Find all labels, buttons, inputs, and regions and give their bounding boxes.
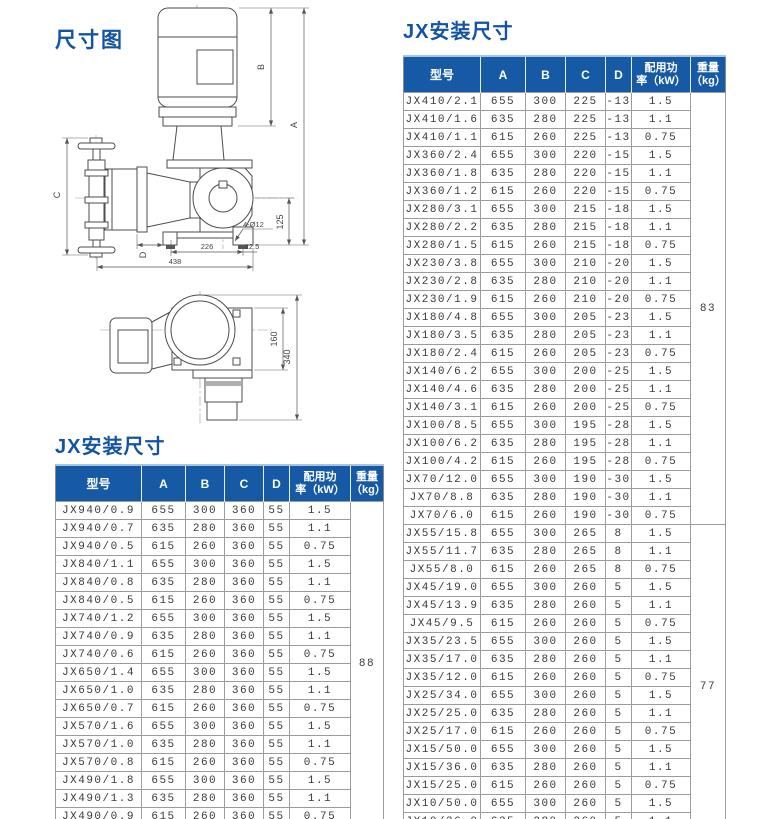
b-cell: 300 (186, 610, 225, 628)
model-cell: JX740/0.9 (56, 628, 142, 646)
power-cell: 1.5 (632, 471, 691, 489)
table-row: JX840/0.8635280360551.1 (56, 574, 384, 592)
dim-label-340: 340 (282, 349, 292, 364)
a-cell: 635 (481, 435, 526, 453)
d-cell: 5 (606, 579, 632, 597)
c-cell: 260 (566, 741, 606, 759)
power-cell: 1.5 (632, 201, 691, 219)
d-cell: 55 (264, 772, 290, 790)
b-cell: 280 (526, 111, 566, 129)
b-cell: 280 (526, 597, 566, 615)
a-cell: 655 (142, 772, 186, 790)
d-cell: 5 (606, 723, 632, 741)
dim-label-160: 160 (269, 331, 279, 346)
b-cell: 260 (526, 507, 566, 525)
a-cell: 615 (142, 538, 186, 556)
a-cell: 635 (481, 111, 526, 129)
a-cell: 615 (142, 808, 186, 819)
column-header-power: 配用功率（kW） (632, 56, 691, 93)
b-cell: 260 (526, 453, 566, 471)
c-cell: 360 (225, 574, 264, 592)
model-cell: JX230/3.8 (404, 255, 481, 273)
table-row: JX280/3.1655300215-181.5 (404, 201, 726, 219)
d-cell: -23 (606, 309, 632, 327)
c-cell: 360 (225, 754, 264, 772)
c-cell: 220 (566, 183, 606, 201)
table-row: JX490/1.8655300360551.5 (56, 772, 384, 790)
a-cell: 635 (481, 327, 526, 345)
table-row: JX55/8.061526026580.75 (404, 561, 726, 579)
c-cell: 220 (566, 147, 606, 165)
dim-label-125: 125 (275, 214, 285, 229)
table-row: JX25/17.061526026050.75 (404, 723, 726, 741)
c-cell: 260 (566, 795, 606, 813)
a-cell: 635 (481, 705, 526, 723)
model-cell: JX940/0.9 (56, 502, 142, 520)
model-cell: JX15/25.0 (404, 777, 481, 795)
model-cell: JX35/12.0 (404, 669, 481, 687)
c-cell: 265 (566, 525, 606, 543)
table-row: JX45/19.065530026051.5 (404, 579, 726, 597)
terminal-box (197, 50, 233, 84)
a-cell: 655 (481, 741, 526, 759)
model-cell: JX940/0.5 (56, 538, 142, 556)
model-cell: JX140/3.1 (404, 399, 481, 417)
model-cell: JX360/1.8 (404, 165, 481, 183)
c-cell: 360 (225, 700, 264, 718)
power-cell: 1.5 (290, 718, 351, 736)
column-header-c: C (225, 465, 264, 502)
power-cell: 1.5 (632, 795, 691, 813)
c-cell: 215 (566, 201, 606, 219)
a-cell: 655 (142, 664, 186, 682)
c-cell: 260 (566, 669, 606, 687)
table-row: JX180/3.5635280205-231.1 (404, 327, 726, 345)
a-cell: 615 (142, 700, 186, 718)
b-cell: 260 (526, 561, 566, 579)
power-cell: 0.75 (632, 129, 691, 147)
c-cell: 200 (566, 363, 606, 381)
b-cell: 280 (186, 520, 225, 538)
model-cell: JX25/34.0 (404, 687, 481, 705)
d-cell: -30 (606, 489, 632, 507)
table-row: JX180/4.8655300205-231.5 (404, 309, 726, 327)
a-cell: 635 (142, 628, 186, 646)
model-cell: JX280/3.1 (404, 201, 481, 219)
table-row: JX230/3.8655300210-201.5 (404, 255, 726, 273)
power-cell: 1.5 (632, 525, 691, 543)
c-cell: 265 (566, 543, 606, 561)
c-cell: 265 (566, 561, 606, 579)
model-cell: JX100/6.2 (404, 435, 481, 453)
outlet-stub (193, 370, 252, 420)
table-row: JX650/0.7615260360550.75 (56, 700, 384, 718)
c-cell: 360 (225, 502, 264, 520)
power-cell: 1.5 (632, 93, 691, 111)
power-cell: 1.5 (632, 579, 691, 597)
model-cell: JX25/25.0 (404, 705, 481, 723)
d-cell: 55 (264, 520, 290, 538)
model-cell: JX360/2.4 (404, 147, 481, 165)
d-cell: -15 (606, 183, 632, 201)
left-table-section: JX安装尺寸 型号ABCD配用功率（kW）重量（kg）JX940/0.96553… (55, 436, 383, 819)
d-cell: -20 (606, 273, 632, 291)
b-cell: 260 (186, 754, 225, 772)
b-cell: 300 (526, 525, 566, 543)
c-cell: 360 (225, 592, 264, 610)
table-row: JX25/34.065530026051.5 (404, 687, 726, 705)
power-cell: 1.5 (632, 309, 691, 327)
d-cell: 55 (264, 682, 290, 700)
c-cell: 360 (225, 664, 264, 682)
model-cell: JX410/1.6 (404, 111, 481, 129)
d-cell: -18 (606, 237, 632, 255)
d-cell: -23 (606, 327, 632, 345)
power-cell: 0.75 (290, 700, 351, 718)
c-cell: 190 (566, 489, 606, 507)
c-cell: 360 (225, 610, 264, 628)
c-cell: 190 (566, 507, 606, 525)
d-cell: -28 (606, 417, 632, 435)
b-cell: 280 (526, 327, 566, 345)
table-row: JX360/1.8635280220-151.1 (404, 165, 726, 183)
model-cell: JX25/17.0 (404, 723, 481, 741)
b-cell: 300 (186, 772, 225, 790)
d-cell: 5 (606, 633, 632, 651)
b-cell: 280 (526, 759, 566, 777)
b-cell: 300 (526, 147, 566, 165)
power-cell: 1.5 (632, 147, 691, 165)
power-cell: 1.1 (632, 597, 691, 615)
b-cell: 300 (526, 687, 566, 705)
model-cell: JX570/1.6 (56, 718, 142, 736)
table-row: JX35/23.565530026051.5 (404, 633, 726, 651)
c-cell: 225 (566, 129, 606, 147)
c-cell: 260 (566, 723, 606, 741)
column-header-d: D (606, 56, 632, 93)
b-cell: 300 (526, 93, 566, 111)
c-cell: 200 (566, 381, 606, 399)
model-cell: JX740/0.6 (56, 646, 142, 664)
column-header-b: B (526, 56, 566, 93)
d-cell: 55 (264, 538, 290, 556)
b-cell: 300 (526, 633, 566, 651)
d-cell: 55 (264, 502, 290, 520)
lantern-bracket (173, 126, 224, 160)
b-cell: 260 (526, 183, 566, 201)
c-cell: 360 (225, 772, 264, 790)
model-cell: JX840/0.5 (56, 592, 142, 610)
a-cell: 615 (481, 615, 526, 633)
catalog-page: 尺寸图 (0, 0, 780, 819)
c-cell: 360 (225, 520, 264, 538)
column-header-a: A (481, 56, 526, 93)
a-cell: 655 (142, 556, 186, 574)
b-cell: 280 (526, 381, 566, 399)
a-cell: 655 (142, 718, 186, 736)
table-row: JX70/8.8635280190-301.1 (404, 489, 726, 507)
model-cell: JX280/2.2 (404, 219, 481, 237)
model-cell: JX55/8.0 (404, 561, 481, 579)
d-cell: -13 (606, 93, 632, 111)
model-cell: JX490/1.3 (56, 790, 142, 808)
b-cell: 300 (526, 201, 566, 219)
table-row: JX410/2.1655300225-131.583 (404, 93, 726, 111)
b-cell: 260 (186, 700, 225, 718)
model-cell: JX45/19.0 (404, 579, 481, 597)
model-cell: JX10/50.0 (404, 795, 481, 813)
power-cell: 1.1 (632, 813, 691, 819)
a-cell: 655 (481, 201, 526, 219)
c-cell: 260 (566, 651, 606, 669)
b-cell: 280 (526, 705, 566, 723)
model-cell: JX180/2.4 (404, 345, 481, 363)
b-cell: 260 (526, 291, 566, 309)
b-cell: 280 (186, 574, 225, 592)
power-cell: 0.75 (632, 723, 691, 741)
top-view: 160 340 (100, 291, 302, 425)
c-cell: 200 (566, 399, 606, 417)
d-cell: -23 (606, 345, 632, 363)
a-cell: 655 (481, 633, 526, 651)
table-row: JX35/17.063528026051.1 (404, 651, 726, 669)
table-row: JX35/12.061526026050.75 (404, 669, 726, 687)
d-cell: 8 (606, 561, 632, 579)
d-cell: 55 (264, 592, 290, 610)
power-cell: 1.5 (632, 417, 691, 435)
right-table-title: JX安装尺寸 (403, 20, 725, 44)
model-cell: JX180/3.5 (404, 327, 481, 345)
a-cell: 635 (142, 574, 186, 592)
model-cell: JX140/4.6 (404, 381, 481, 399)
model-cell: JX35/17.0 (404, 651, 481, 669)
model-cell: JX650/0.7 (56, 700, 142, 718)
b-cell: 260 (526, 723, 566, 741)
power-cell: 0.75 (632, 561, 691, 579)
c-cell: 260 (566, 633, 606, 651)
table-row: JX70/6.0615260190-300.75 (404, 507, 726, 525)
side-view: B A C 125 4-Ø12 D 226 (52, 5, 309, 271)
a-cell: 655 (481, 147, 526, 165)
c-cell: 260 (566, 777, 606, 795)
model-cell: JX180/4.8 (404, 309, 481, 327)
a-cell: 615 (481, 777, 526, 795)
model-cell: JX490/1.8 (56, 772, 142, 790)
right-install-dimensions-table: 型号ABCD配用功率（kW）重量（kg）JX410/2.1655300225-1… (403, 55, 726, 819)
b-cell: 300 (186, 664, 225, 682)
b-cell: 260 (526, 777, 566, 795)
d-cell: 8 (606, 525, 632, 543)
table-row: JX140/4.6635280200-251.1 (404, 381, 726, 399)
model-cell: JX570/1.0 (56, 736, 142, 754)
left-table-title: JX安装尺寸 (55, 436, 383, 458)
a-cell: 655 (142, 502, 186, 520)
power-cell: 1.1 (632, 327, 691, 345)
d-cell: -18 (606, 219, 632, 237)
c-cell: 210 (566, 273, 606, 291)
table-row: JX100/4.2615260195-280.75 (404, 453, 726, 471)
d-cell: 55 (264, 754, 290, 772)
pump-head-top (110, 311, 172, 373)
table-row: JX360/1.2615260220-150.75 (404, 183, 726, 201)
table-row: JX360/2.4655300220-151.5 (404, 147, 726, 165)
a-cell: 615 (481, 345, 526, 363)
model-cell: JX45/13.9 (404, 597, 481, 615)
c-cell: 360 (225, 736, 264, 754)
c-cell: 190 (566, 471, 606, 489)
model-cell: JX10/36.0 (404, 813, 481, 819)
table-row: JX15/50.065530026051.5 (404, 741, 726, 759)
table-row: JX55/15.865530026581.577 (404, 525, 726, 543)
b-cell: 280 (526, 489, 566, 507)
c-cell: 260 (566, 759, 606, 777)
power-cell: 1.1 (290, 628, 351, 646)
table-row: JX45/9.561526026050.75 (404, 615, 726, 633)
b-cell: 300 (526, 741, 566, 759)
b-cell: 280 (526, 813, 566, 819)
c-cell: 260 (566, 687, 606, 705)
a-cell: 615 (142, 592, 186, 610)
c-cell: 225 (566, 93, 606, 111)
model-cell: JX15/50.0 (404, 741, 481, 759)
c-cell: 205 (566, 345, 606, 363)
b-cell: 260 (526, 345, 566, 363)
power-cell: 0.75 (632, 237, 691, 255)
d-cell: -20 (606, 255, 632, 273)
b-cell: 300 (186, 556, 225, 574)
model-cell: JX140/6.2 (404, 363, 481, 381)
table-row: JX570/1.6655300360551.5 (56, 718, 384, 736)
power-cell: 0.75 (632, 453, 691, 471)
b-cell: 260 (526, 129, 566, 147)
power-cell: 1.1 (290, 682, 351, 700)
c-cell: 360 (225, 646, 264, 664)
table-row: JX140/6.2655300200-251.5 (404, 363, 726, 381)
b-cell: 300 (526, 309, 566, 327)
d-cell: 5 (606, 813, 632, 819)
table-row: JX180/2.4615260205-230.75 (404, 345, 726, 363)
a-cell: 635 (142, 682, 186, 700)
power-cell: 1.1 (290, 520, 351, 538)
power-cell: 1.1 (632, 543, 691, 561)
power-cell: 0.75 (632, 183, 691, 201)
d-cell: 5 (606, 759, 632, 777)
b-cell: 300 (526, 363, 566, 381)
table-row: JX280/2.2635280215-181.1 (404, 219, 726, 237)
model-cell: JX100/8.5 (404, 417, 481, 435)
a-cell: 635 (481, 219, 526, 237)
b-cell: 260 (186, 538, 225, 556)
table-row: JX10/36.063528026051.1 (404, 813, 726, 819)
table-row: JX940/0.9655300360551.588 (56, 502, 384, 520)
dim-label-b: B (256, 64, 266, 70)
power-cell: 1.5 (290, 610, 351, 628)
column-header-d: D (264, 465, 290, 502)
dim-label-c: C (52, 191, 62, 198)
d-cell: 55 (264, 646, 290, 664)
c-cell: 195 (566, 417, 606, 435)
power-cell: 1.1 (290, 736, 351, 754)
d-cell: 55 (264, 664, 290, 682)
power-cell: 0.75 (632, 507, 691, 525)
power-cell: 0.75 (632, 615, 691, 633)
c-cell: 360 (225, 718, 264, 736)
d-cell: -25 (606, 399, 632, 417)
c-cell: 205 (566, 309, 606, 327)
table-row: JX940/0.7635280360551.1 (56, 520, 384, 538)
d-cell: 55 (264, 700, 290, 718)
a-cell: 635 (481, 381, 526, 399)
b-cell: 300 (526, 255, 566, 273)
b-cell: 280 (526, 219, 566, 237)
a-cell: 655 (481, 579, 526, 597)
table-row: JX15/36.063528026051.1 (404, 759, 726, 777)
model-cell: JX740/1.2 (56, 610, 142, 628)
left-install-dimensions-table: 型号ABCD配用功率（kW）重量（kg）JX940/0.965530036055… (55, 464, 384, 819)
table-row: JX55/11.763528026581.1 (404, 543, 726, 561)
table-row: JX45/13.963528026051.1 (404, 597, 726, 615)
model-cell: JX230/2.8 (404, 273, 481, 291)
c-cell: 215 (566, 237, 606, 255)
b-cell: 280 (186, 628, 225, 646)
c-cell: 215 (566, 219, 606, 237)
pump-dimension-drawing: B A C 125 4-Ø12 D 226 (40, 5, 390, 435)
power-cell: 1.5 (632, 633, 691, 651)
a-cell: 635 (481, 597, 526, 615)
a-cell: 655 (142, 610, 186, 628)
power-cell: 1.1 (632, 111, 691, 129)
d-cell: 5 (606, 615, 632, 633)
c-cell: 220 (566, 165, 606, 183)
model-cell: JX490/0.9 (56, 808, 142, 819)
dim-label-12-5: 12.5 (245, 242, 260, 251)
table-row: JX570/0.8615260360550.75 (56, 754, 384, 772)
b-cell: 300 (526, 579, 566, 597)
model-cell: JX15/36.0 (404, 759, 481, 777)
c-cell: 260 (566, 705, 606, 723)
power-cell: 1.5 (632, 255, 691, 273)
c-cell: 205 (566, 327, 606, 345)
a-cell: 635 (481, 165, 526, 183)
table-row: JX740/0.9635280360551.1 (56, 628, 384, 646)
b-cell: 260 (186, 592, 225, 610)
a-cell: 655 (481, 93, 526, 111)
b-cell: 300 (526, 471, 566, 489)
table-row: JX650/1.0635280360551.1 (56, 682, 384, 700)
a-cell: 615 (481, 183, 526, 201)
model-cell: JX100/4.2 (404, 453, 481, 471)
mount-plate (167, 160, 252, 168)
model-cell: JX410/2.1 (404, 93, 481, 111)
table-row: JX410/1.1615260225-130.75 (404, 129, 726, 147)
power-cell: 1.5 (632, 741, 691, 759)
model-cell: JX70/6.0 (404, 507, 481, 525)
table-row: JX740/0.6615260360550.75 (56, 646, 384, 664)
d-cell: 5 (606, 687, 632, 705)
power-cell: 1.1 (632, 651, 691, 669)
dim-label-d: D (138, 251, 148, 258)
column-header-a: A (142, 465, 186, 502)
a-cell: 615 (481, 129, 526, 147)
power-cell: 0.75 (632, 669, 691, 687)
c-cell: 260 (566, 813, 606, 819)
a-cell: 635 (481, 813, 526, 819)
power-cell: 0.75 (290, 754, 351, 772)
a-cell: 635 (142, 790, 186, 808)
drive-boss (193, 168, 253, 228)
power-cell: 1.5 (290, 664, 351, 682)
weight-cell: 88 (351, 502, 384, 819)
